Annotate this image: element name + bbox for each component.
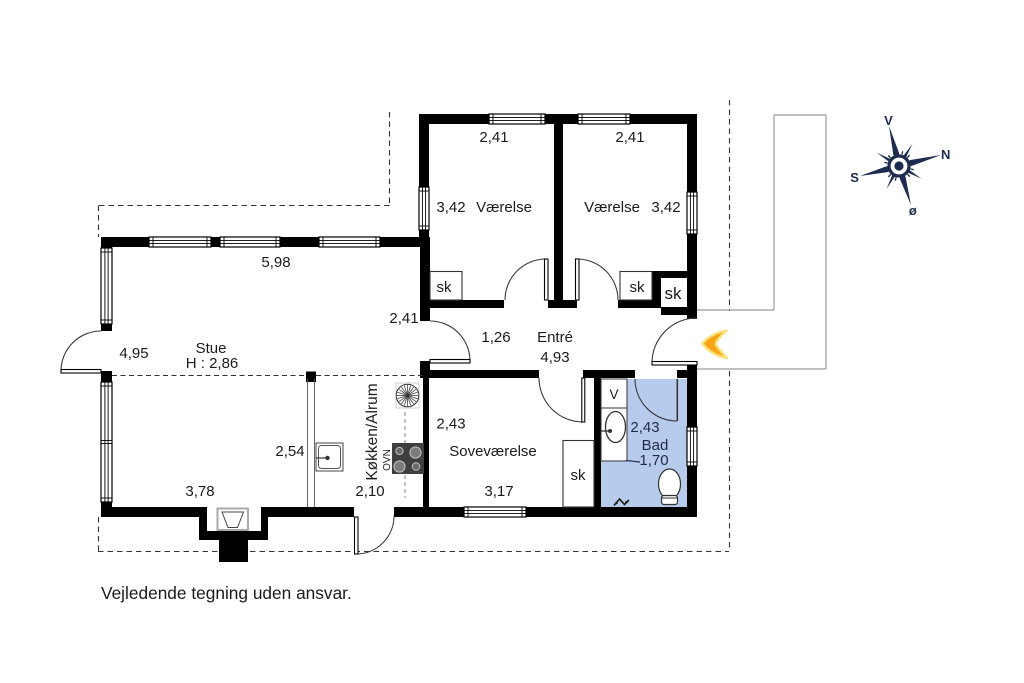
svg-text:S: S <box>850 170 859 185</box>
svg-text:Soveværelse: Soveværelse <box>449 443 537 460</box>
svg-text:5,98: 5,98 <box>261 254 290 271</box>
svg-text:3,42: 3,42 <box>651 199 680 216</box>
svg-text:sk: sk <box>665 284 683 303</box>
svg-text:sk: sk <box>437 279 453 296</box>
svg-text:sk: sk <box>571 467 587 484</box>
svg-text:Entré: Entré <box>537 329 573 346</box>
svg-text:3,78: 3,78 <box>185 483 214 500</box>
svg-text:Værelse: Værelse <box>476 199 532 216</box>
svg-text:OVN: OVN <box>382 449 393 471</box>
svg-text:1,70: 1,70 <box>639 452 668 469</box>
svg-text:1,26: 1,26 <box>481 329 510 346</box>
svg-text:4,93: 4,93 <box>540 349 569 366</box>
svg-text:2,54: 2,54 <box>275 443 304 460</box>
svg-text:Køkken/Alrum: Køkken/Alrum <box>364 383 381 480</box>
svg-text:3,17: 3,17 <box>484 483 513 500</box>
svg-text:2,41: 2,41 <box>389 310 418 327</box>
svg-text:N: N <box>941 147 950 162</box>
svg-text:ø: ø <box>909 203 917 218</box>
svg-text:H : 2,86: H : 2,86 <box>186 355 239 372</box>
svg-text:Værelse: Værelse <box>584 199 640 216</box>
svg-text:2,41: 2,41 <box>479 129 508 146</box>
svg-text:Vejledende tegning uden ansvar: Vejledende tegning uden ansvar. <box>101 583 352 603</box>
svg-text:sk: sk <box>630 279 646 296</box>
svg-text:2,41: 2,41 <box>615 129 644 146</box>
svg-text:2,43: 2,43 <box>630 419 659 436</box>
svg-text:3,42: 3,42 <box>436 199 465 216</box>
svg-text:2,10: 2,10 <box>355 483 384 500</box>
svg-text:V: V <box>884 113 893 128</box>
svg-text:V: V <box>609 387 618 402</box>
svg-text:4,95: 4,95 <box>119 345 148 362</box>
svg-text:2,43: 2,43 <box>436 416 465 433</box>
